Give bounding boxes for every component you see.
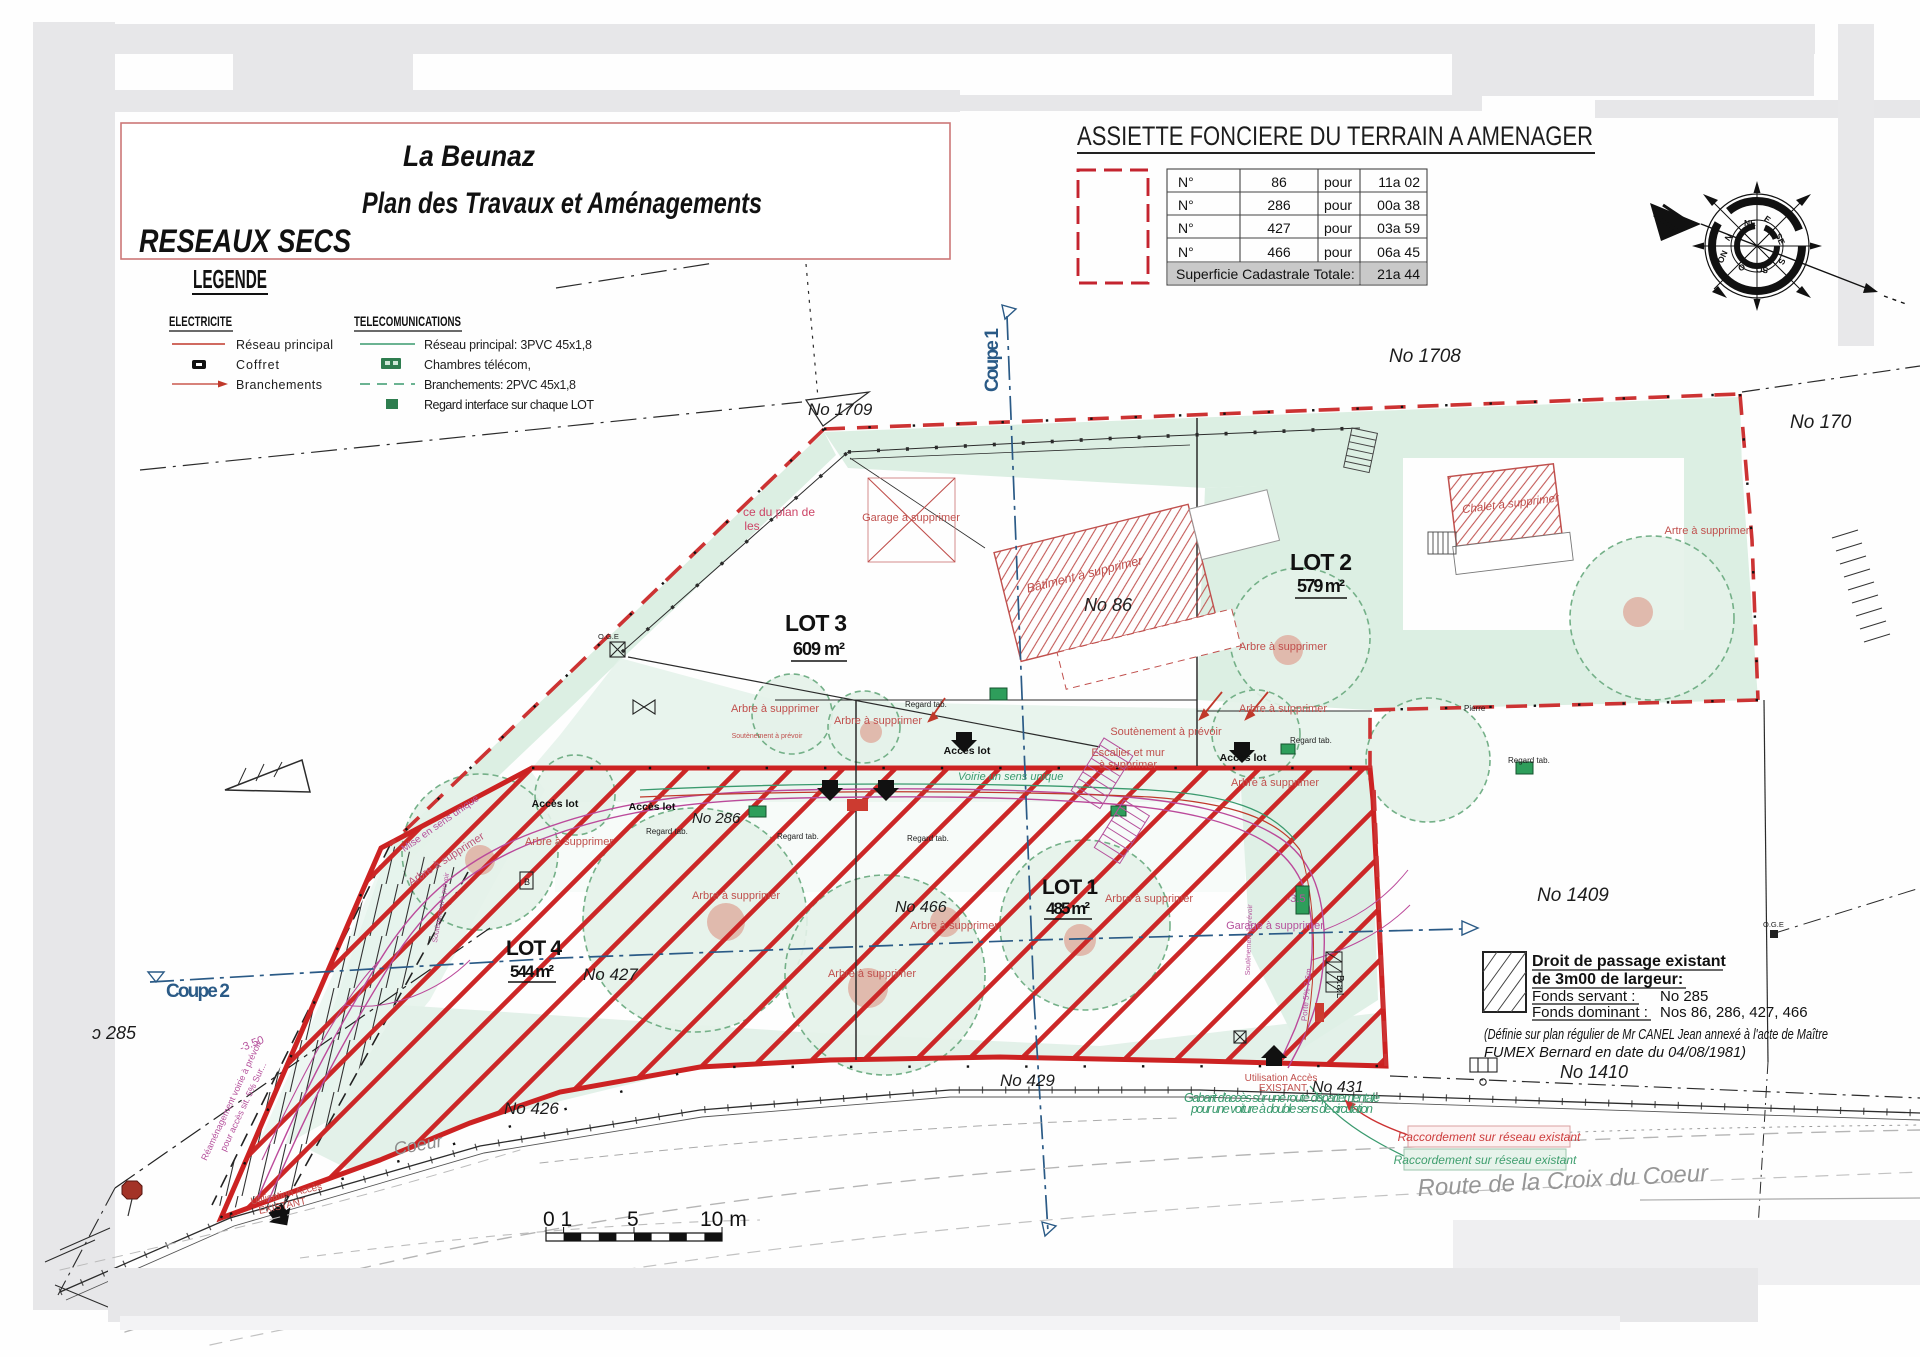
svg-text:B.a.L: B.a.L [1334, 975, 1345, 999]
svg-text:No 426: No 426 [504, 1099, 559, 1118]
svg-text:Superficie Cadastrale Totale:: Superficie Cadastrale Totale: [1176, 266, 1355, 282]
svg-text:Coupe 2: Coupe 2 [166, 981, 230, 1002]
svg-text:NE: NE [1744, 218, 1756, 228]
svg-text:Arbre à supprimer: Arbre à supprimer [834, 715, 922, 727]
svg-text:TELECOMUNICATIONS: TELECOMUNICATIONS [354, 313, 461, 329]
svg-text:ce du plan de: ce du plan de [743, 505, 815, 519]
svg-text:Fonds dominant :: Fonds dominant : [1532, 1004, 1648, 1021]
svg-text:Pierre: Pierre [1464, 704, 1486, 713]
svg-text:579 m²: 579 m² [1297, 576, 1345, 596]
svg-text:Regard tab.: Regard tab. [1290, 736, 1332, 745]
svg-text:Branchements: Branchements [236, 378, 322, 392]
svg-text:11a 02: 11a 02 [1378, 174, 1420, 190]
svg-text:Soutènement à prévoir: Soutènement à prévoir [1110, 726, 1222, 738]
svg-text:Arbre à supprimer: Arbre à supprimer [1231, 777, 1319, 789]
svg-text:No 1410: No 1410 [1560, 1062, 1628, 1082]
svg-text:No 1709: No 1709 [808, 400, 873, 419]
svg-text:N°: N° [1178, 174, 1194, 190]
svg-text:No 466: No 466 [895, 899, 947, 916]
svg-text:B: B [524, 877, 530, 887]
svg-text:N: N [1722, 232, 1734, 243]
svg-text:485 m²: 485 m² [1046, 899, 1090, 918]
svg-text:Coupe 1: Coupe 1 [982, 328, 1003, 392]
svg-text:Réseau principal: 3PVC 45x1,8: Réseau principal: 3PVC 45x1,8 [424, 338, 592, 352]
svg-text:Raccordement sur réseau exista: Raccordement sur réseau existant [1394, 1153, 1577, 1167]
svg-text:ASSIETTE FONCIERE DU TERRAIN A: ASSIETTE FONCIERE DU TERRAIN A AMENAGER [1077, 121, 1593, 151]
svg-text:0 1: 0 1 [543, 1208, 572, 1231]
svg-text:les: les [744, 519, 759, 533]
svg-text:à supprimer: à supprimer [1099, 759, 1157, 771]
svg-text:286: 286 [1267, 197, 1291, 213]
svg-text:No 1708: No 1708 [1389, 346, 1461, 367]
svg-text:pour: pour [1324, 244, 1352, 260]
svg-text:O.G.E: O.G.E [598, 632, 619, 641]
svg-text:86: 86 [1271, 174, 1287, 190]
svg-text:Voirie un sens unique: Voirie un sens unique [958, 771, 1063, 783]
svg-text:LOT 4: LOT 4 [506, 937, 562, 960]
svg-text:00a 38: 00a 38 [1377, 197, 1420, 213]
svg-text:Regard tab.: Regard tab. [777, 832, 819, 841]
svg-text:Droit de passage existant: Droit de passage existant [1532, 953, 1727, 970]
svg-text:Escalier et mur: Escalier et mur [1091, 747, 1165, 759]
svg-text:pour: pour [1324, 174, 1352, 190]
svg-text:Arbre à supprimer: Arbre à supprimer [910, 920, 998, 932]
svg-text:466: 466 [1267, 244, 1291, 260]
svg-text:LOT 3: LOT 3 [785, 610, 847, 636]
svg-text:No 285: No 285 [1660, 988, 1708, 1005]
svg-text:La Beunaz: La Beunaz [403, 140, 535, 173]
svg-text:Arbre à supprimer: Arbre à supprimer [731, 703, 819, 715]
svg-text:Arbre à supprimer: Arbre à supprimer [828, 968, 916, 980]
svg-text:Arbre à supprimer: Arbre à supprimer [1239, 641, 1327, 653]
svg-text:Réseau principal: Réseau principal [236, 338, 333, 352]
svg-text:E: E [1762, 213, 1773, 225]
svg-text:06a 45: 06a 45 [1377, 244, 1420, 260]
svg-text:-3.5: -3.5 [1287, 893, 1306, 905]
svg-text:Soutènement à prévoir: Soutènement à prévoir [732, 733, 803, 740]
svg-text:Nos 86, 286, 427, 466: Nos 86, 286, 427, 466 [1660, 1004, 1808, 1021]
svg-text:No 170: No 170 [1790, 412, 1852, 433]
svg-text:609 m²: 609 m² [793, 639, 845, 659]
svg-text:Arbre à supprimer: Arbre à supprimer [525, 836, 613, 848]
svg-text:Regard tab.: Regard tab. [905, 700, 947, 709]
svg-text:de 3m00 de largeur:: de 3m00 de largeur: [1532, 971, 1683, 988]
svg-text:LOT 1: LOT 1 [1042, 876, 1098, 899]
svg-text:03a 59: 03a 59 [1377, 220, 1420, 236]
svg-text:21a 44: 21a 44 [1377, 266, 1420, 282]
svg-text:Regard tab.: Regard tab. [646, 827, 688, 836]
svg-text:S: S [1776, 257, 1788, 267]
svg-text:Accès lot: Accès lot [629, 801, 676, 813]
svg-text:427: 427 [1267, 220, 1291, 236]
svg-text:LEGENDE: LEGENDE [193, 264, 267, 294]
svg-text:Accès lot: Accès lot [944, 745, 991, 757]
svg-text:SO: SO [1755, 264, 1768, 275]
svg-text:Raccordement sur réseau exista: Raccordement sur réseau existant [1398, 1130, 1581, 1144]
svg-text:Accès lot: Accès lot [532, 798, 579, 810]
svg-text:LOT 2: LOT 2 [1290, 549, 1352, 575]
svg-text:pour: pour [1324, 197, 1352, 213]
svg-text:O.G.E: O.G.E [1763, 920, 1784, 929]
svg-text:Artre à supprimer: Artre à supprimer [1665, 525, 1750, 537]
svg-text:pour: pour [1324, 220, 1352, 236]
svg-text:Chambres télécom,: Chambres télécom, [424, 358, 531, 372]
svg-text:Fonds servant :: Fonds servant : [1532, 988, 1635, 1005]
svg-text:Regard tab.: Regard tab. [1508, 756, 1550, 765]
svg-text:SE: SE [1773, 232, 1787, 247]
svg-text:ɔ 285: ɔ 285 [92, 1023, 137, 1043]
svg-text:FUMEX Bernard en date du 04/08: FUMEX Bernard en date du 04/08/1981) [1484, 1045, 1746, 1061]
svg-text:Coffret: Coffret [236, 358, 280, 372]
svg-text:No 286: No 286 [692, 810, 741, 827]
svg-text:Plan des Travaux et Aménagemen: Plan des Travaux et Aménagements [362, 187, 762, 220]
svg-text:Regard interface sur chaque LO: Regard interface sur chaque LOT [424, 398, 594, 412]
svg-text:Garage à supprimer: Garage à supprimer [1226, 920, 1324, 932]
svg-text:Garage à supprimer: Garage à supprimer [862, 512, 960, 524]
svg-text:Regard tab.: Regard tab. [907, 834, 949, 843]
svg-text:(Définie sur plan régulier de: (Définie sur plan régulier de Mr CANEL J… [1484, 1027, 1828, 1043]
svg-text:No 427: No 427 [583, 965, 638, 984]
svg-text:5: 5 [627, 1208, 639, 1231]
svg-text:544 m²: 544 m² [510, 962, 554, 981]
svg-text:10 m: 10 m [700, 1208, 747, 1231]
svg-text:N°: N° [1178, 197, 1194, 213]
svg-text:No 429: No 429 [1000, 1071, 1055, 1090]
svg-text:No 1409: No 1409 [1537, 885, 1609, 906]
svg-text:Arbre à supprimer: Arbre à supprimer [692, 890, 780, 902]
svg-text:pour une voiture à double sens: pour une voiture à double sens de circul… [1190, 1102, 1373, 1116]
svg-text:Branchements: 2PVC 45x1,8: Branchements: 2PVC 45x1,8 [424, 378, 576, 392]
svg-text:No 86: No 86 [1084, 595, 1133, 615]
svg-text:Accès lot: Accès lot [1220, 752, 1267, 764]
svg-text:Arbre à supprimer: Arbre à supprimer [1105, 893, 1193, 905]
svg-text:N°: N° [1178, 220, 1194, 236]
svg-text:N°: N° [1178, 244, 1194, 260]
svg-text:ELECTRICITE: ELECTRICITE [169, 313, 232, 329]
svg-text:Arbre à supprimer: Arbre à supprimer [1239, 703, 1327, 715]
svg-text:RESEAUX SECS: RESEAUX SECS [139, 223, 352, 259]
